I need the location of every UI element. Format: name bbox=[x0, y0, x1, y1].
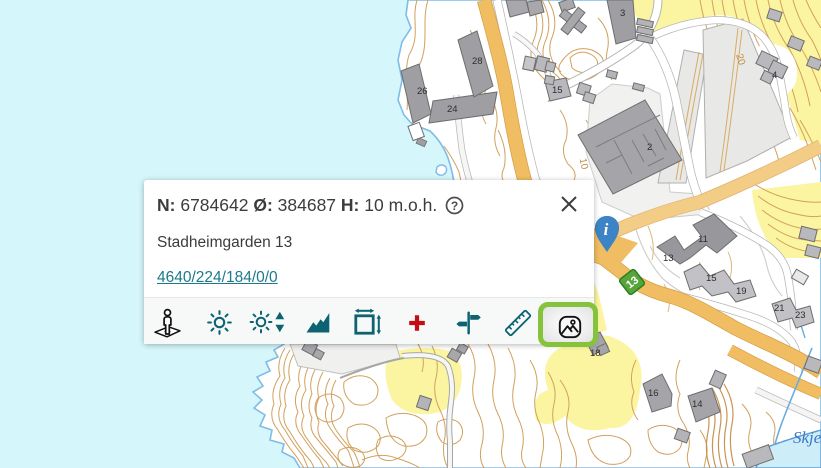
svg-text:Skje: Skje bbox=[793, 428, 821, 447]
svg-text:26: 26 bbox=[417, 86, 428, 97]
svg-text:16: 16 bbox=[648, 388, 659, 399]
svg-text:14: 14 bbox=[692, 399, 703, 410]
svg-text:15: 15 bbox=[706, 273, 717, 284]
svg-text:13: 13 bbox=[663, 253, 674, 264]
svg-text:21: 21 bbox=[774, 303, 785, 314]
svg-text:i: i bbox=[604, 220, 609, 239]
svg-text:24: 24 bbox=[447, 104, 458, 115]
svg-text:18: 18 bbox=[590, 348, 601, 359]
svg-text:23: 23 bbox=[795, 310, 806, 321]
svg-text:11: 11 bbox=[698, 234, 708, 245]
svg-text:2: 2 bbox=[647, 142, 652, 153]
svg-text:3: 3 bbox=[620, 8, 625, 19]
svg-text:19: 19 bbox=[736, 286, 747, 297]
svg-text:28: 28 bbox=[472, 56, 483, 67]
svg-text:4: 4 bbox=[772, 70, 777, 81]
svg-text:15: 15 bbox=[552, 85, 563, 96]
svg-text:?: ? bbox=[451, 198, 458, 212]
